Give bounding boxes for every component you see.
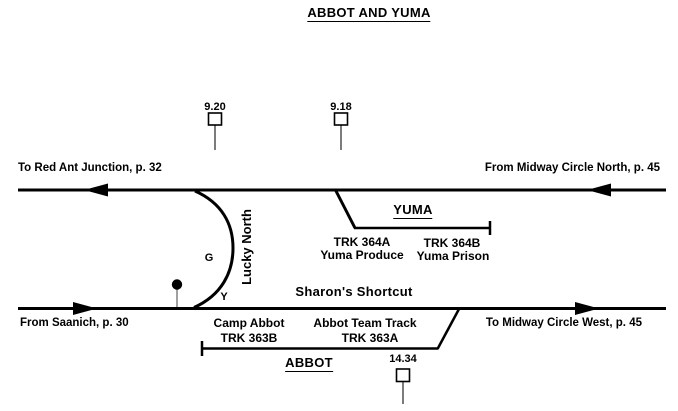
switch-stand-icon [172,279,182,289]
page-title: ABBOT AND YUMA [307,6,430,20]
bottom-right-arrowhead-icon [575,302,599,315]
bottom-left-arrowhead-icon [73,302,97,315]
top-right-arrowhead-icon [587,184,611,197]
switch-g-label: G [205,252,214,264]
bottom-left-destination-label: From Saanich, p. 30 [20,317,129,330]
yuma-station-title-text: YUMA [393,202,432,219]
abbot-station-title-text: ABBOT [285,355,333,372]
track-schematic: ABBOT AND YUMA 9.20 9.18 14.34 To Red An… [0,0,678,411]
page-title-text: ABBOT AND YUMA [307,5,430,22]
sharons-shortcut-label: Sharon's Shortcut [295,285,412,299]
milepost-label-9-18: 9.18 [330,101,351,113]
yuma-track-a-label: Yuma Produce [320,249,403,262]
abbot-track-b-number: TRK 363B [221,332,278,345]
abbot-track-b-label: Camp Abbot [214,317,285,330]
abbot-track-a-number: TRK 363A [342,332,399,345]
abbot-track-a-label: Abbot Team Track [313,317,416,330]
milepost-label-9-20: 9.20 [204,101,225,113]
yuma-station-title: YUMA [393,203,432,217]
yuma-track-b-label: Yuma Prison [417,250,490,263]
abbot-station-title: ABBOT [285,356,333,370]
bottom-right-destination-label: To Midway Circle West, p. 45 [440,317,642,330]
milepost-9-18-marker-icon [335,113,348,150]
top-right-destination-label: From Midway Circle North, p. 45 [458,162,660,175]
milepost-14-34-marker-icon [397,369,410,404]
yuma-switch-diagonal-line [336,191,355,228]
lucky-north-siding-label: Lucky North [240,209,254,285]
top-left-destination-label: To Red Ant Junction, p. 32 [18,162,162,175]
switch-y-label: Y [220,291,227,303]
milepost-9-20-marker-icon [209,113,222,150]
track-lines-layer [0,0,678,411]
top-left-arrowhead-icon [84,184,108,197]
milepost-label-14-34: 14.34 [389,353,417,365]
